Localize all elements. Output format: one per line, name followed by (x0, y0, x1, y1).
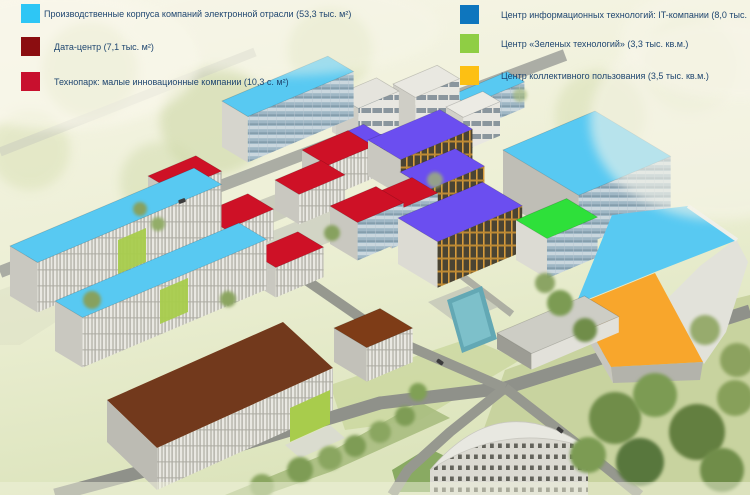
legend-item-label: Центр коллективного пользования (3,5 тыс… (501, 71, 709, 81)
tree (133, 202, 147, 216)
legend-item-label: Дата-центр (7,1 тыс. м²) (54, 42, 154, 52)
technopark-color-swatch (21, 72, 40, 91)
tree (547, 290, 573, 316)
tree (324, 225, 340, 241)
tree (318, 446, 342, 470)
tree (513, 88, 527, 102)
tree (570, 437, 606, 473)
legend-item-it-center: Центр информационных технологий: IT-комп… (460, 5, 750, 24)
tree (151, 217, 165, 231)
it-center-color-swatch (460, 5, 479, 24)
shared-use-color-swatch (460, 66, 479, 85)
legend-item-label: Центр «Зеленых технологий» (3,3 тыс. кв.… (501, 39, 688, 49)
legend-item-green-tech: Центр «Зеленых технологий» (3,3 тыс. кв.… (460, 34, 688, 53)
tree (690, 315, 720, 345)
tree (287, 457, 313, 483)
legend-item-datacenter: Дата-центр (7,1 тыс. м²) (21, 37, 154, 56)
tree (395, 406, 415, 426)
legend-item-technopark: Технопарк: малые инновационные компании … (21, 72, 289, 91)
tree (83, 291, 101, 309)
tree (573, 318, 597, 342)
production-color-swatch (21, 4, 40, 23)
tree (220, 291, 236, 307)
legend-item-shared-use: Центр коллективного пользования (3,5 тыс… (460, 66, 709, 85)
green-tech-color-swatch (460, 34, 479, 53)
tree (589, 392, 641, 444)
tree (616, 438, 664, 486)
datacenter-color-swatch (21, 37, 40, 56)
tree (409, 383, 427, 401)
legend-item-label: Производственные корпуса компаний электр… (44, 9, 351, 19)
tree (535, 273, 555, 293)
tree (633, 373, 677, 417)
tree (344, 435, 366, 457)
legend-item-label: Технопарк: малые инновационные компании … (54, 77, 289, 87)
tree (369, 421, 391, 443)
tree (427, 172, 443, 188)
legend-item-production: Производственные корпуса компаний электр… (21, 4, 351, 23)
legend-item-label: Центр информационных технологий: IT-комп… (501, 10, 750, 20)
